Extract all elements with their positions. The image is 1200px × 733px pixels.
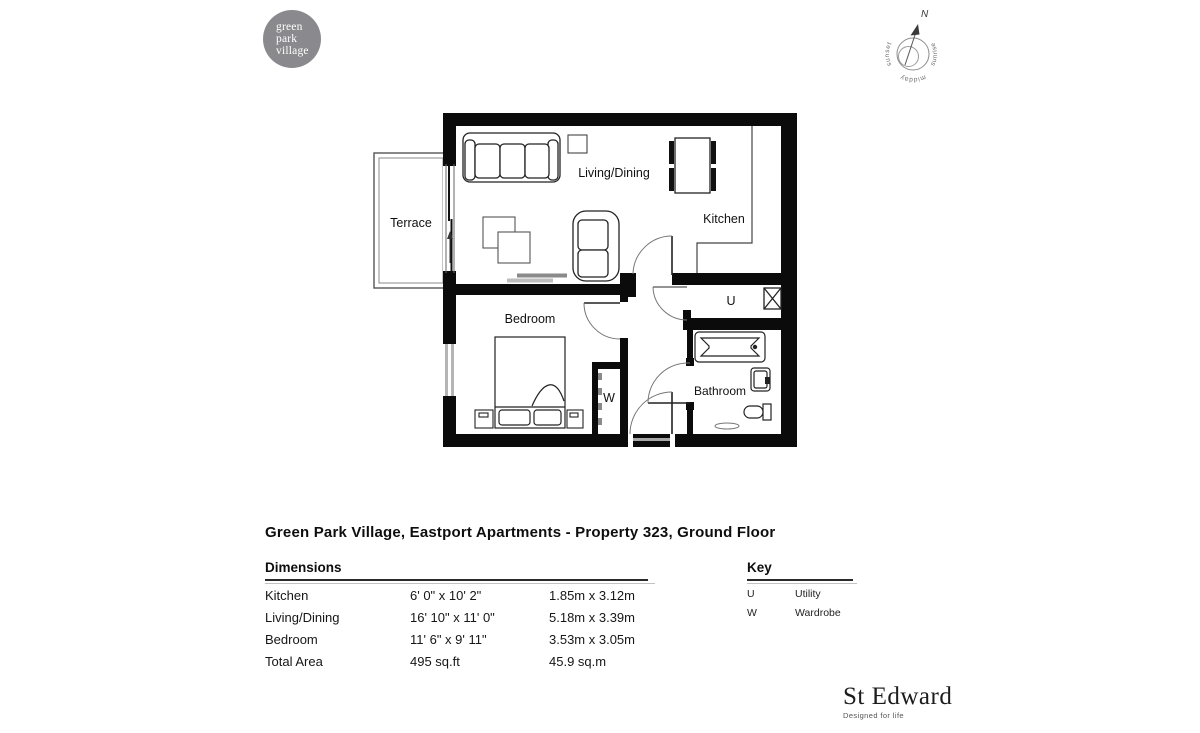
dimensions-heading: Dimensions [265,560,648,581]
key-label: Utility [795,588,821,600]
table-row: Total Area 495 sq.ft 45.9 sq.m [265,650,655,672]
room-label-wardrobe: W [603,391,615,405]
entrance-threshold [633,438,670,441]
svg-text:sunrise: sunrise [929,41,939,67]
compass-sunset-label: sunset [884,41,894,67]
imperial-cell: 11' 6" x 9' 11" [410,632,549,647]
imperial-cell: 495 sq.ft [410,654,549,669]
compass-midday-label: midday [899,73,927,83]
table-row: Kitchen 6' 0" x 10' 2" 1.85m x 3.12m [265,584,655,606]
side-table-icon [568,135,587,153]
toilet-icon [744,404,771,420]
table-row: Living/Dining 16' 10" x 11' 0" 5.18m x 3… [265,606,655,628]
compass-sunrise-label: sunrise [929,41,939,67]
bath-mat-icon [715,423,739,429]
room-cell: Living/Dining [265,610,410,625]
wall-track-detail [507,274,567,283]
room-cell: Kitchen [265,588,410,603]
room-label-bedroom: Bedroom [505,312,556,326]
living-room-door-icon [633,236,672,275]
bathtub-icon [695,332,765,362]
table-row: Bedroom 11' 6" x 9' 11" 3.53m x 3.05m [265,628,655,650]
key-symbol: U [747,588,795,600]
key-symbol: W [747,607,795,619]
room-cell: Bedroom [265,632,410,647]
dining-table-icon [669,138,716,193]
bathroom-door-icon [648,363,690,403]
room-label-living-dining: Living/Dining [578,166,650,180]
coffee-tables-icon [483,217,530,263]
room-cell: Total Area [265,654,410,669]
compass-icon: N sunset sunrise midday [876,4,952,88]
washing-machine-icon [764,288,781,309]
logo-line: green [276,21,321,33]
developer-brand: St Edward Designed for life [843,684,952,720]
key-row: U Utility [747,584,857,603]
sofa-icon [463,133,560,182]
compass-north-label: N [921,9,929,20]
imperial-cell: 6' 0" x 10' 2" [410,588,549,603]
compass-inner-ring [899,47,919,67]
dimensions-table: Dimensions Kitchen 6' 0" x 10' 2" 1.85m … [265,560,655,672]
key-heading: Key [747,560,853,581]
metric-cell: 3.53m x 3.05m [549,632,655,647]
wardrobe-rail-icon [598,373,602,425]
room-label-terrace: Terrace [390,216,432,230]
development-logo: green park village [263,10,321,68]
entrance-door-icon [630,392,672,434]
bed-icon [495,337,565,428]
key-legend: Key U Utility W Wardrobe [747,560,857,622]
svg-text:midday: midday [899,73,927,83]
bedroom-window-icon [443,340,456,400]
page-title: Green Park Village, Eastport Apartments … [265,524,865,541]
bedroom-door-icon [584,303,620,339]
room-label-utility: U [726,294,735,308]
key-label: Wardrobe [795,607,841,619]
imperial-cell: 16' 10" x 11' 0" [410,610,549,625]
room-label-bathroom: Bathroom [694,384,746,398]
svg-text:sunset: sunset [884,41,894,67]
logo-line: village [276,45,321,57]
metric-cell: 5.18m x 3.39m [549,610,655,625]
brand-name: St Edward [843,684,952,710]
logo-line: park [276,33,321,45]
metric-cell: 1.85m x 3.12m [549,588,655,603]
armchair-icon [573,211,619,281]
terrace-sliding-door-icon [443,162,456,275]
floor-plan: Terrace Living/Dining Kitchen Bedroom Ba… [370,105,800,455]
north-arrow-head [911,24,920,36]
key-row: W Wardrobe [747,603,857,622]
sink-icon [751,368,770,391]
room-label-kitchen: Kitchen [703,212,745,226]
brand-tagline: Designed for life [843,711,952,720]
metric-cell: 45.9 sq.m [549,654,655,669]
utility-door-icon [653,287,687,320]
